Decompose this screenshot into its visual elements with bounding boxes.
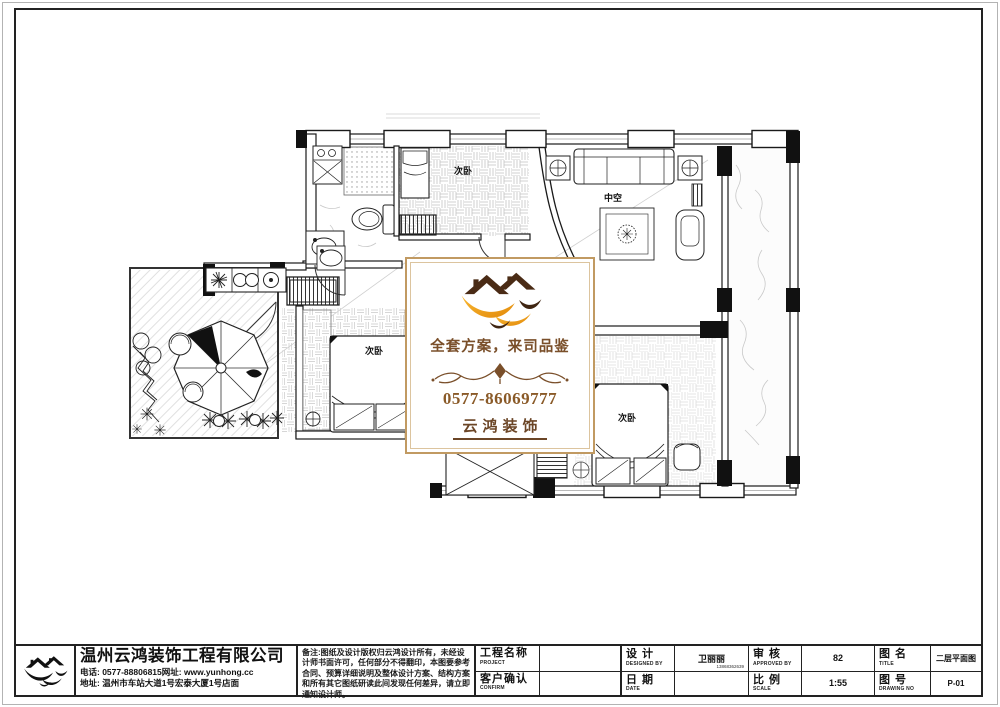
notes: 备注:图纸及设计版权归云鸿设计所有，未经设计师书面许可，任何部分不得翻印，本图要… — [298, 646, 476, 695]
project-confirm-block: 工程名称 PROJECT 客户确认 CONFIRM — [476, 646, 622, 695]
drawing-sheet: { "watermark": { "slogan": "全套方案，来司品鉴", … — [0, 0, 1000, 707]
project-value — [540, 646, 620, 671]
designer-phone: 13868362639 — [716, 664, 744, 669]
chair — [674, 444, 700, 470]
watermark-phone: 0577-86069777 — [443, 389, 557, 409]
company-logo-icon — [21, 653, 69, 689]
company-name: 温州云鸿装饰工程有限公司 — [80, 647, 290, 667]
room-label: 中空 — [604, 192, 622, 203]
plant-symbol — [211, 272, 227, 288]
scale-label: 比 例 SCALE — [748, 671, 801, 696]
title-table: 设 计 DESIGNED BY 卫丽丽 13868362639 审 核 APPR… — [622, 646, 981, 695]
ornament-divider-icon — [425, 360, 575, 386]
terrace-chair — [183, 382, 203, 402]
living-room — [546, 149, 704, 260]
confirm-value — [540, 671, 620, 696]
terrace-chair — [169, 333, 191, 355]
designed-value: 卫丽丽 13868362639 — [674, 646, 748, 671]
room-label: 次卧 — [454, 165, 472, 176]
company-logo-cell — [16, 646, 76, 695]
watermark-brand: 云鸿装饰 — [453, 415, 546, 440]
radiator — [400, 215, 436, 235]
drawing-no-label: 图 号 DRAWING NO — [874, 671, 930, 696]
approved-value: 82 — [801, 646, 874, 671]
sofa — [574, 149, 674, 184]
room-label: 次卧 — [365, 345, 383, 356]
watermark-slogan: 全套方案，来司品鉴 — [430, 335, 570, 356]
ceiling-fan-symbol — [573, 462, 589, 478]
date-value — [674, 671, 748, 696]
designed-label: 设 计 DESIGNED BY — [622, 646, 674, 671]
company-phone: 电话: 0577-88806815网址: www.yunhong.cc — [80, 667, 290, 678]
toilet-tank — [383, 205, 394, 234]
date-label: 日 期 DATE — [622, 671, 674, 696]
confirm-label: 客户确认 CONFIRM — [476, 671, 540, 696]
watermark-card: 全套方案，来司品鉴 0577-86069777 云鸿装饰 — [405, 257, 595, 454]
room-label: 次卧 — [618, 412, 636, 423]
scale-value: 1:55 — [801, 671, 874, 696]
title-strip: 温州云鸿装饰工程有限公司 电话: 0577-88806815网址: www.yu… — [14, 644, 983, 697]
drawing-title-value: 二层平面图 — [930, 646, 981, 671]
project-label: 工程名称 PROJECT — [476, 646, 540, 671]
brand-logo-icon — [454, 269, 546, 331]
louver-cabinet — [287, 277, 339, 305]
company-info: 温州云鸿装饰工程有限公司 电话: 0577-88806815网址: www.yu… — [76, 646, 298, 695]
company-address: 地址: 温州市车站大道1号宏泰大厦1号店面 — [80, 678, 290, 689]
approved-label: 审 核 APPROVED BY — [748, 646, 801, 671]
title-label: 图 名 TITLE — [874, 646, 930, 671]
drawing-no-value: P-01 — [930, 671, 981, 696]
